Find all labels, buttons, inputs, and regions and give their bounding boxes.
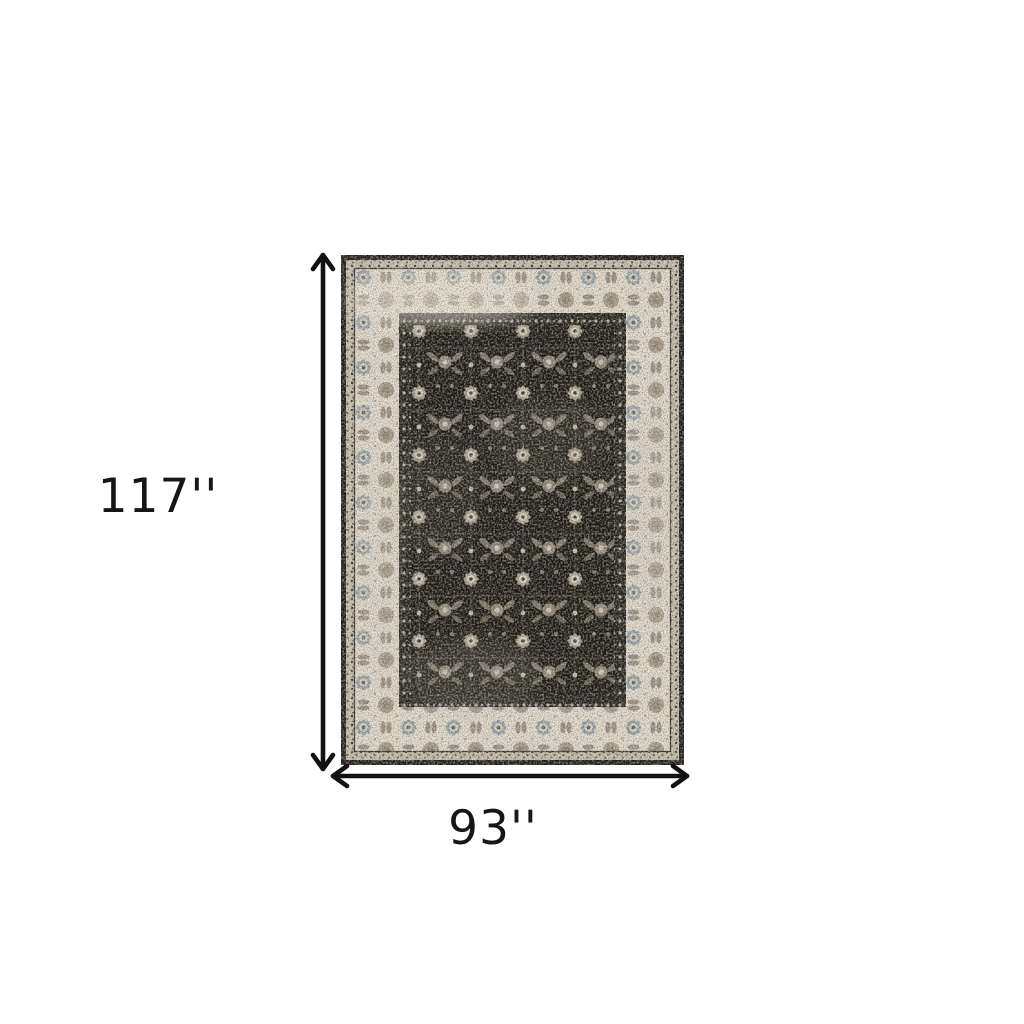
vertical-arrow-icon [310, 250, 336, 774]
width-dimension-label: 93'' [413, 802, 573, 856]
vertical-dimension-arrow [310, 250, 336, 774]
height-dimension-label: 117'' [78, 470, 238, 524]
horizontal-dimension-arrow [326, 763, 694, 789]
rug-image [341, 255, 684, 765]
dimension-diagram: 117'' 93'' [0, 0, 1024, 1024]
horizontal-arrow-icon [326, 763, 694, 789]
rug-photo [341, 255, 684, 765]
rug-noise-dark [341, 255, 684, 765]
